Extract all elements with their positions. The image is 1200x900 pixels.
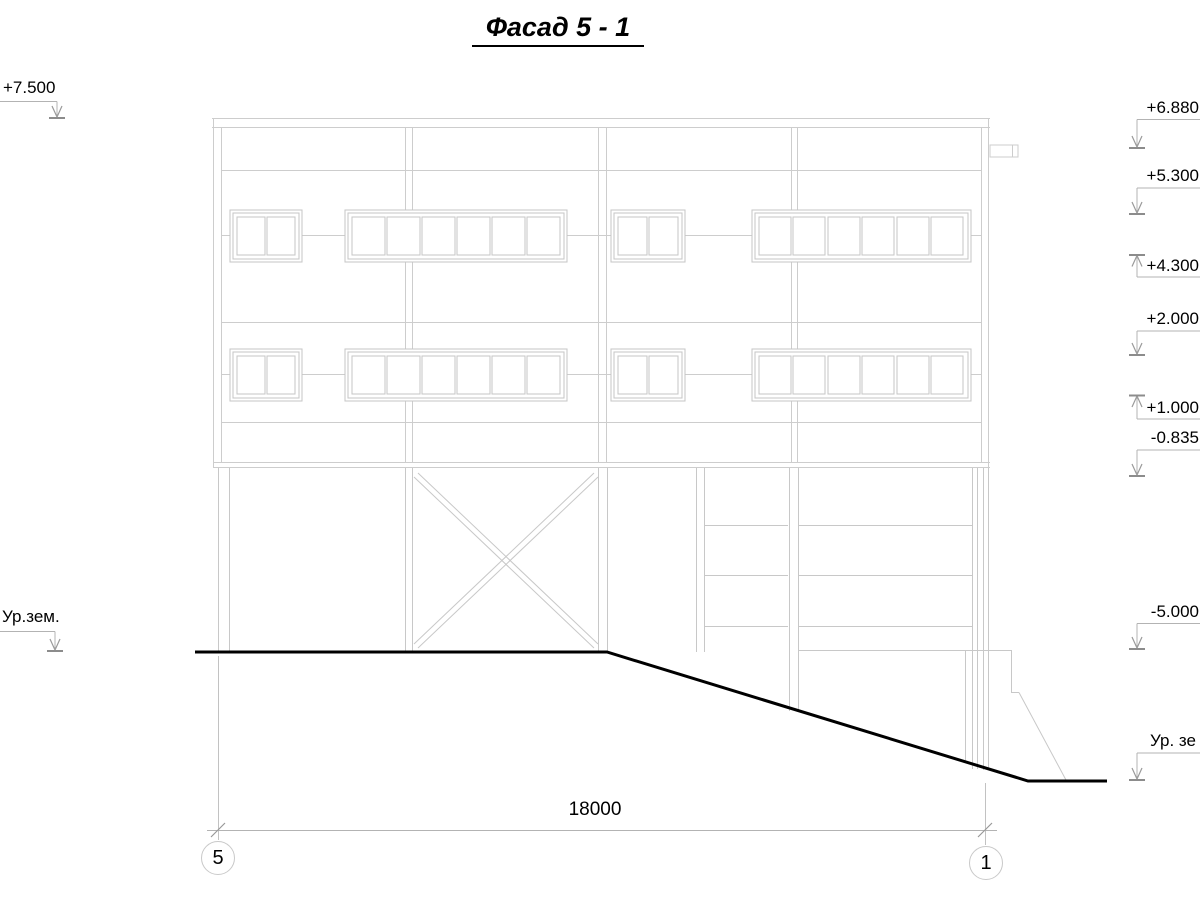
drawing-title-text: Фасад 5 - 1 bbox=[472, 12, 644, 47]
elevation-label-minus0835: -0.835 bbox=[1140, 429, 1199, 447]
building-shell bbox=[212, 119, 1018, 469]
window-level-connectors bbox=[221, 236, 981, 375]
axis-bubble-circles bbox=[202, 842, 1003, 880]
elevation-marker-lines bbox=[0, 102, 1200, 781]
drawing-title: Фасад 5 - 1 bbox=[428, 12, 688, 47]
elevation-label-plus1000: +1.000 bbox=[1140, 399, 1199, 417]
columns bbox=[219, 468, 989, 770]
elevation-label-plus2000: +2.000 bbox=[1140, 310, 1199, 328]
elevation-label-plus5300: +5.300 bbox=[1140, 167, 1199, 185]
windows bbox=[230, 210, 971, 401]
mullions bbox=[406, 128, 798, 462]
elevation-label-plus6880: +6.880 bbox=[1140, 99, 1199, 117]
elevation-label-minus5000: -5.000 bbox=[1140, 603, 1199, 621]
x-bracing bbox=[414, 473, 598, 648]
stair-rungs bbox=[705, 526, 1012, 651]
dimension-value: 18000 bbox=[545, 799, 645, 821]
elevation-label-plus7500: +7.500 bbox=[3, 79, 59, 97]
elevation-label-plus4300: +4.300 bbox=[1140, 257, 1199, 275]
axis-bubble-1: 1 bbox=[968, 852, 1004, 874]
facade-drawing-sheet: Фасад 5 - 1 +7.500 Ур.зем. +6.880 +5.300… bbox=[0, 0, 1200, 900]
marker-base-ticks bbox=[47, 118, 1145, 780]
axis-bubble-5: 5 bbox=[200, 847, 236, 869]
ground-line bbox=[195, 652, 1107, 781]
ground-level-label-left: Ур.зем. bbox=[2, 608, 72, 626]
ground-level-label-right: Ур. зе bbox=[1150, 732, 1200, 750]
pedestal bbox=[966, 650, 1067, 780]
roof-spout bbox=[990, 145, 1018, 157]
facade-linework bbox=[0, 0, 1200, 900]
facade-bands bbox=[221, 171, 981, 423]
